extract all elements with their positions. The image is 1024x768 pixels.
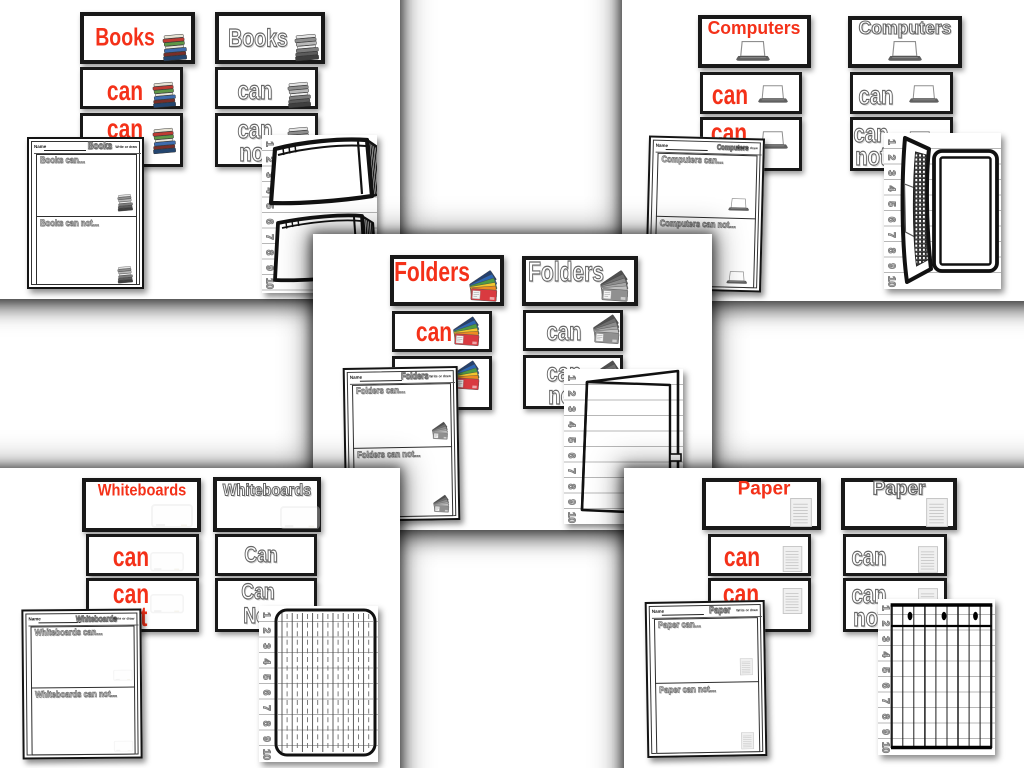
svg-text:8: 8 [261,721,272,727]
svg-text:5: 5 [886,201,897,207]
svg-text:2: 2 [880,621,891,627]
svg-text:4: 4 [880,652,891,658]
svg-text:8: 8 [886,248,897,254]
svg-text:3: 3 [261,643,272,649]
svg-text:3: 3 [886,170,897,176]
svg-text:1: 1 [566,375,577,381]
svg-text:10: 10 [566,512,577,524]
svg-text:1: 1 [264,141,275,147]
svg-text:7: 7 [880,698,891,704]
svg-text:1: 1 [886,139,897,145]
svg-text:9: 9 [880,729,891,735]
svg-text:4: 4 [886,186,897,192]
svg-text:10: 10 [880,742,891,754]
svg-text:7: 7 [264,234,275,240]
svg-text:9: 9 [886,263,897,269]
svg-text:7: 7 [566,468,577,474]
svg-text:9: 9 [264,265,275,271]
svg-text:6: 6 [566,453,577,459]
svg-text:10: 10 [261,749,272,761]
svg-text:5: 5 [261,674,272,680]
svg-text:7: 7 [886,232,897,238]
svg-text:2: 2 [566,391,577,397]
svg-text:4: 4 [566,422,577,428]
svg-text:10: 10 [264,278,275,290]
svg-text:2: 2 [261,628,272,634]
svg-text:9: 9 [261,736,272,742]
svg-text:8: 8 [566,484,577,490]
svg-text:8: 8 [264,250,275,256]
svg-text:6: 6 [880,683,891,689]
svg-text:7: 7 [261,705,272,711]
svg-text:3: 3 [880,636,891,642]
svg-text:1: 1 [880,605,891,611]
svg-text:3: 3 [566,406,577,412]
svg-text:5: 5 [566,437,577,443]
svg-text:2: 2 [886,155,897,161]
svg-text:6: 6 [261,690,272,696]
svg-text:1: 1 [261,612,272,618]
svg-text:6: 6 [264,219,275,225]
svg-text:5: 5 [880,667,891,673]
svg-text:6: 6 [886,217,897,223]
svg-text:10: 10 [886,276,897,288]
svg-text:9: 9 [566,499,577,505]
svg-text:8: 8 [880,714,891,720]
svg-text:4: 4 [261,659,272,665]
